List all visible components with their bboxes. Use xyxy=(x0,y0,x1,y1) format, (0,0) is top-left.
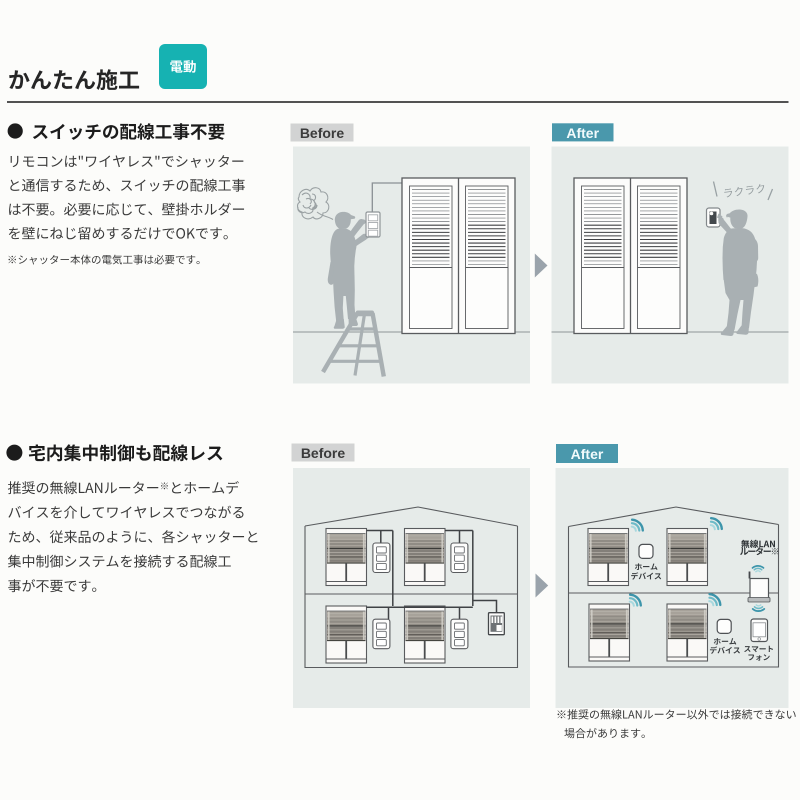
svg-text:After: After xyxy=(571,446,604,462)
svg-text:Before: Before xyxy=(301,445,346,461)
svg-text:After: After xyxy=(566,125,599,141)
svg-text:Before: Before xyxy=(300,125,345,141)
